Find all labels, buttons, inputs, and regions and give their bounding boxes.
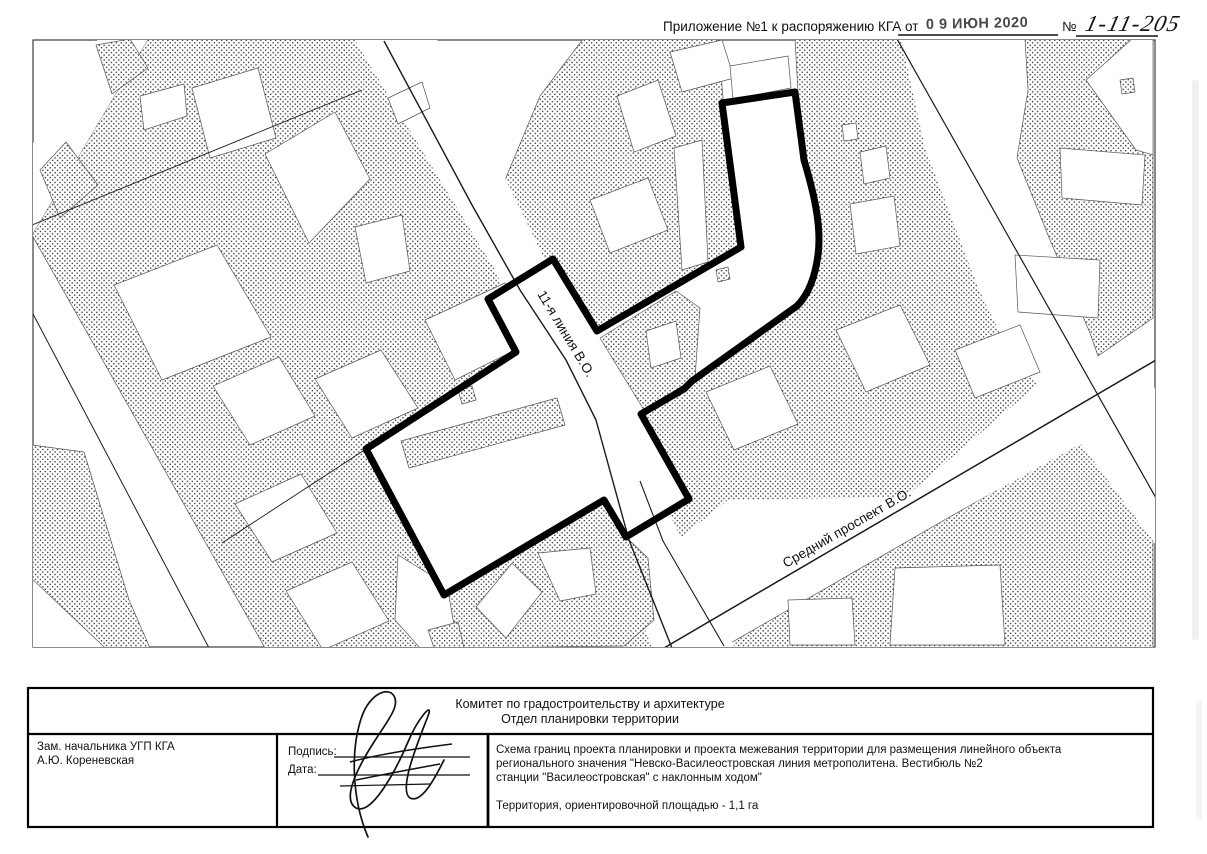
svg-text:Территория, ориентировочной пл: Территория, ориентировочной площадью - 1… xyxy=(496,800,759,812)
svg-text:Отдел планировки территории: Отдел планировки территории xyxy=(501,712,679,726)
svg-text:станции "Василеостровская" с н: станции "Василеостровская" с наклонным х… xyxy=(496,772,762,784)
svg-text:0 9 ИЮН 2020: 0 9 ИЮН 2020 xyxy=(926,15,1029,33)
svg-text:регионального значения "Невско: регионального значения "Невско-Василеост… xyxy=(496,758,983,770)
svg-text:1-11-205: 1-11-205 xyxy=(1083,11,1184,37)
svg-text:Дата:: Дата: xyxy=(288,764,317,776)
svg-text:Подпись:: Подпись: xyxy=(288,746,337,758)
svg-text:№: № xyxy=(1062,19,1076,34)
svg-text:А.Ю. Кореневская: А.Ю. Кореневская xyxy=(37,755,134,767)
svg-text:Комитет по градостроительству: Комитет по градостроительству и архитект… xyxy=(455,697,724,711)
svg-text:Зам. начальника УГП КГА: Зам. начальника УГП КГА xyxy=(37,741,175,753)
svg-text:Схема границ проекта планировк: Схема границ проекта планировки и проект… xyxy=(496,744,1062,756)
svg-text:Приложение №1 к распоряжению К: Приложение №1 к распоряжению КГА от xyxy=(663,19,918,34)
